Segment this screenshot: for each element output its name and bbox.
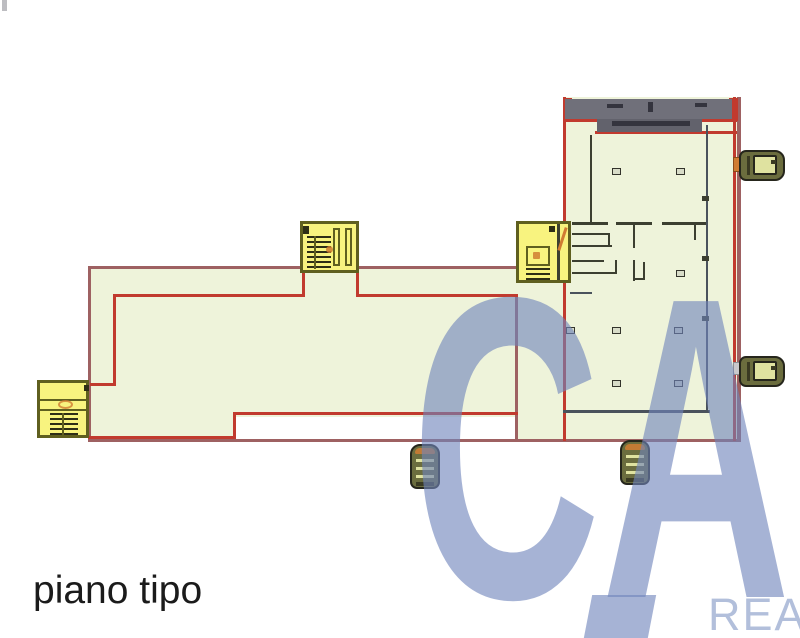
plan-outline-segment bbox=[233, 412, 518, 415]
roof-band-mark bbox=[607, 104, 623, 108]
wall-tick bbox=[702, 256, 709, 261]
watermark-letter-leg bbox=[584, 595, 656, 638]
wall-segment bbox=[572, 260, 604, 262]
car-window bbox=[416, 459, 434, 462]
elevator-shaft bbox=[345, 228, 352, 266]
car-detail bbox=[626, 478, 644, 482]
column-marker bbox=[676, 270, 685, 277]
plan-outline-segment bbox=[356, 269, 359, 297]
car-hood bbox=[625, 444, 645, 450]
stair-divider bbox=[62, 413, 64, 435]
plan-outline-segment bbox=[113, 294, 303, 297]
stair-treads bbox=[526, 268, 550, 281]
wall-segment bbox=[563, 410, 710, 413]
plan-outline-segment bbox=[737, 97, 741, 442]
wall-segment bbox=[572, 222, 608, 225]
plan-outline-segment bbox=[90, 383, 115, 386]
car-window bbox=[626, 463, 644, 466]
column-marker bbox=[566, 327, 575, 334]
wall-segment bbox=[572, 233, 610, 235]
roof-band-mark bbox=[648, 102, 653, 112]
wall-tick bbox=[702, 316, 709, 321]
car-icon bbox=[739, 356, 785, 387]
car-icon bbox=[620, 440, 650, 485]
car-icon bbox=[739, 150, 785, 181]
stairwell-block-top bbox=[300, 221, 359, 273]
car-detail bbox=[771, 160, 776, 164]
wall-segment bbox=[572, 245, 612, 247]
car-windshield-line bbox=[747, 156, 750, 175]
wall-tick bbox=[702, 196, 709, 201]
wall-segment bbox=[570, 292, 592, 294]
car-window bbox=[416, 475, 434, 478]
stair-divider bbox=[314, 236, 316, 269]
car-hood bbox=[415, 448, 435, 454]
car-icon bbox=[410, 444, 440, 489]
car-detail bbox=[416, 482, 434, 486]
wall-segment bbox=[662, 222, 706, 225]
elevator-shaft bbox=[333, 228, 340, 266]
stair-landing-mark bbox=[303, 226, 309, 234]
roof-band-mark bbox=[695, 103, 707, 107]
roof-band-mark bbox=[612, 121, 690, 126]
door-swing-mark bbox=[533, 252, 540, 259]
plan-outline-segment bbox=[88, 436, 235, 439]
car-window bbox=[753, 155, 777, 175]
car-detail bbox=[771, 366, 776, 370]
plan-floor-fill bbox=[88, 268, 565, 417]
plan-outline-segment bbox=[88, 266, 305, 269]
plan-outline-segment bbox=[733, 97, 736, 441]
wall-segment bbox=[643, 262, 645, 280]
column-marker bbox=[612, 168, 621, 175]
plan-outline-segment bbox=[113, 294, 116, 386]
column-marker bbox=[612, 327, 621, 334]
column-marker bbox=[674, 327, 683, 334]
column-marker bbox=[676, 168, 685, 175]
plan-outline-segment bbox=[233, 413, 236, 439]
car-window bbox=[626, 471, 644, 474]
stairwell-block-left bbox=[37, 380, 89, 438]
wall-segment bbox=[590, 135, 592, 223]
door-swing-mark bbox=[58, 400, 73, 409]
floor-plan bbox=[0, 0, 800, 638]
stair-landing-mark bbox=[84, 385, 89, 391]
wall-segment bbox=[572, 272, 617, 274]
stair-landing-mark bbox=[549, 226, 555, 232]
wall-segment bbox=[694, 224, 696, 240]
column-marker bbox=[612, 380, 621, 387]
wall-segment bbox=[608, 233, 610, 247]
stair-wall bbox=[557, 224, 560, 280]
column-marker bbox=[674, 380, 683, 387]
watermark-rea: REA bbox=[708, 592, 800, 637]
floorplan-image: CA REA piano tipo bbox=[0, 0, 800, 638]
car-window bbox=[753, 361, 777, 381]
plan-outline-segment bbox=[515, 294, 518, 439]
elevator-shaft bbox=[526, 246, 550, 266]
car-window bbox=[626, 455, 644, 458]
caption-piano-tipo: piano tipo bbox=[33, 571, 202, 610]
plan-outline-segment bbox=[358, 294, 518, 297]
car-windshield-line bbox=[747, 362, 750, 381]
door-swing-mark bbox=[326, 246, 333, 253]
stair-treads bbox=[50, 413, 78, 435]
stair-divider bbox=[40, 409, 86, 411]
wall-segment bbox=[615, 260, 617, 274]
wall-segment bbox=[633, 224, 635, 248]
wall-segment bbox=[706, 125, 708, 412]
car-window bbox=[416, 467, 434, 470]
plan-outline-segment bbox=[302, 269, 305, 297]
stairwell-block-junction bbox=[516, 221, 571, 283]
